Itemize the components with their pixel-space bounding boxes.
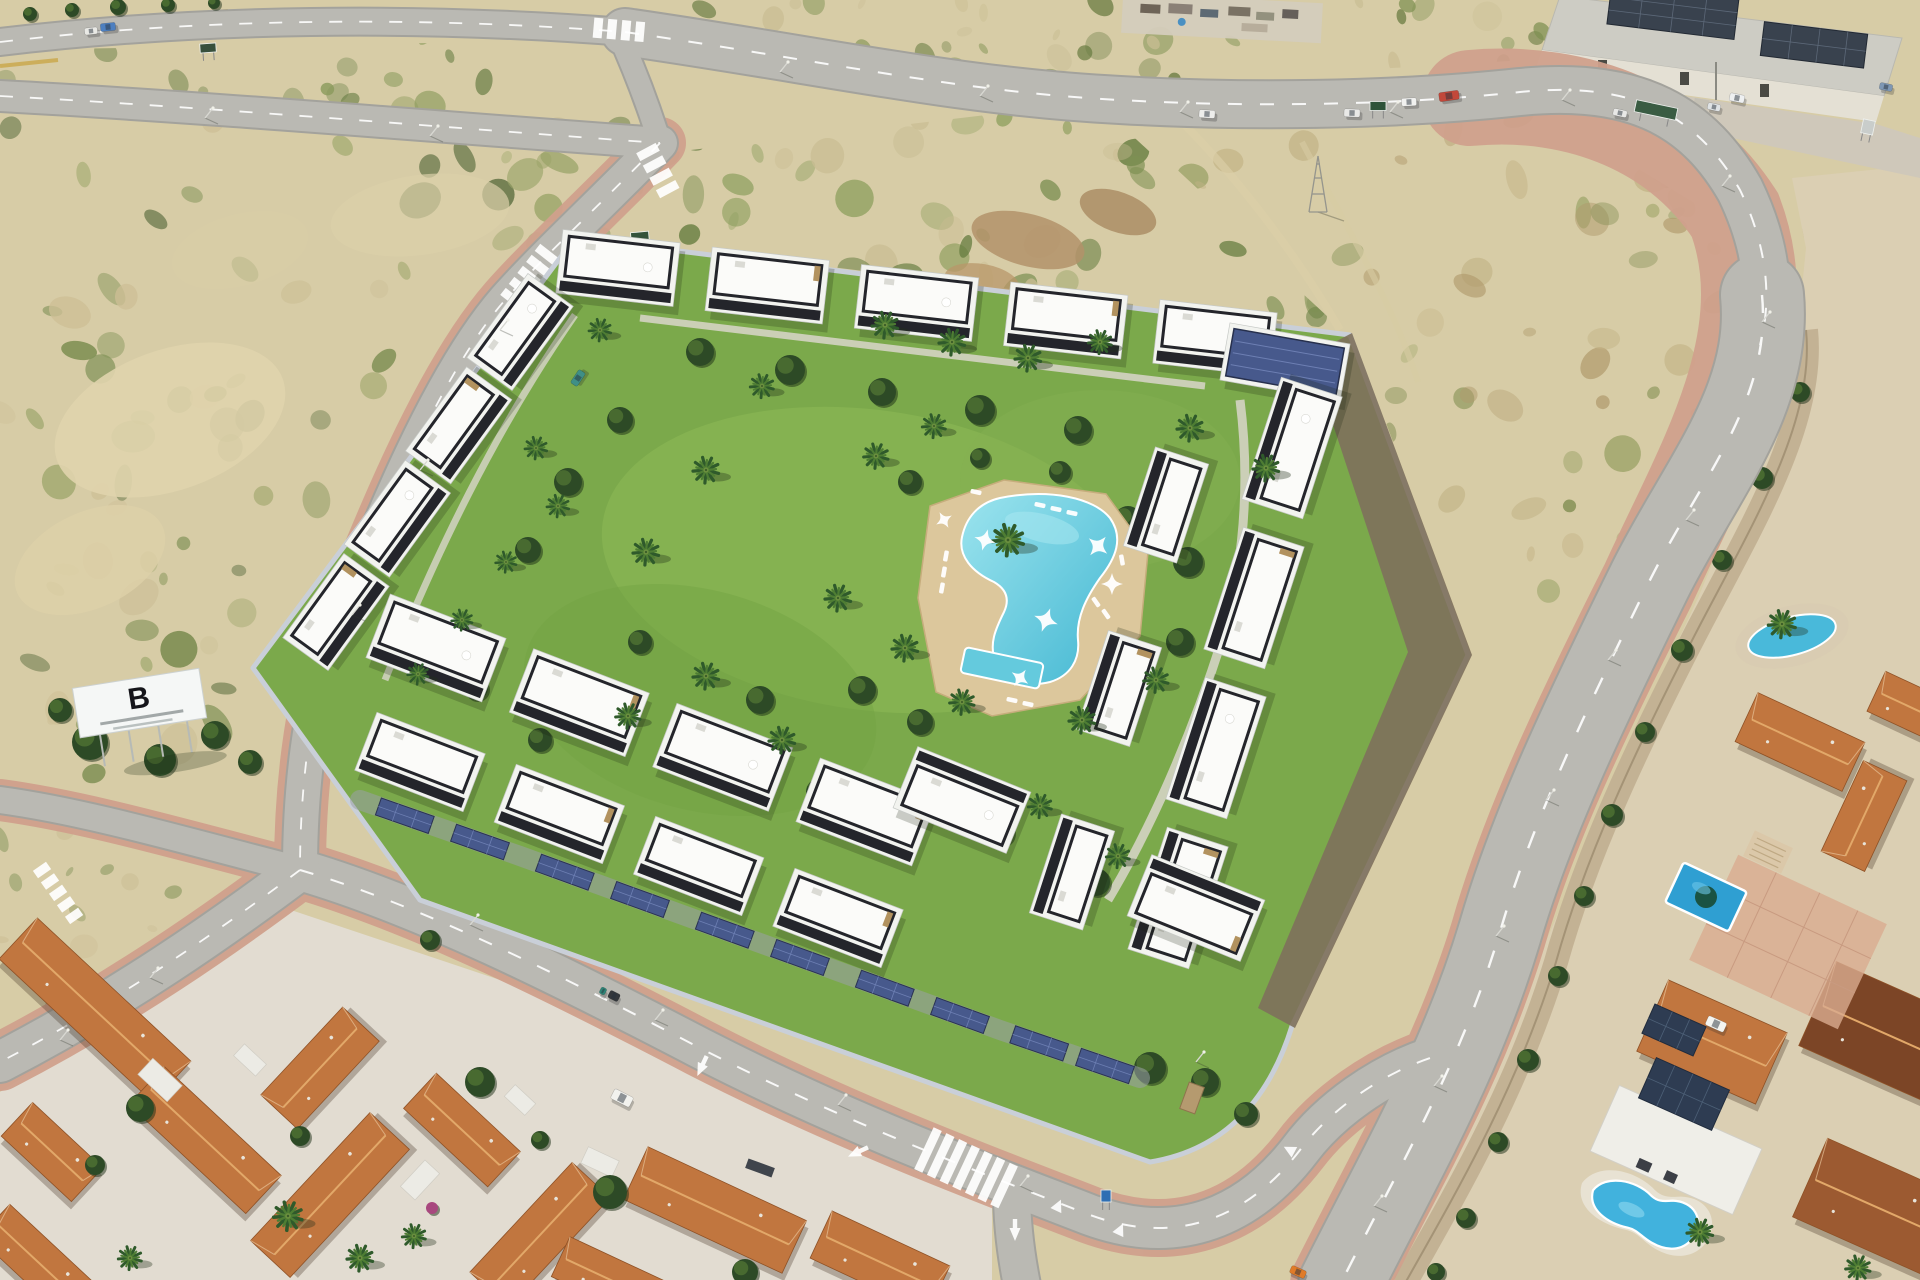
- aerial-render: B: [0, 0, 1920, 1280]
- light-lamp: [1728, 174, 1731, 177]
- warehouse-door: [1760, 84, 1769, 97]
- building-block: [704, 247, 835, 333]
- light-lamp: [1692, 508, 1695, 511]
- roof-furniture: [884, 278, 895, 285]
- light-lamp: [1768, 310, 1771, 313]
- scrub-patch: [979, 4, 988, 22]
- vehicle-glass: [1445, 92, 1453, 99]
- light-lamp: [1026, 1174, 1029, 1177]
- light-lamp: [986, 84, 989, 87]
- light-lamp: [1396, 100, 1399, 103]
- light-lamp: [211, 106, 214, 109]
- vehicle-glass: [1617, 110, 1623, 115]
- sign-panel: [1370, 102, 1386, 111]
- sign-panel: [200, 43, 217, 53]
- light-lamp: [661, 1008, 664, 1011]
- light-lamp: [844, 1093, 847, 1096]
- roof-furniture: [585, 243, 596, 250]
- scrub-patch: [1385, 387, 1407, 404]
- light-lamp: [1380, 1194, 1383, 1197]
- roof-furniture: [735, 261, 746, 268]
- vehicle-glass: [105, 24, 111, 30]
- light-lamp: [436, 124, 439, 127]
- light-lamp: [1568, 88, 1571, 91]
- zebra-stripe: [634, 21, 645, 42]
- light-lamp: [1186, 100, 1189, 103]
- zebra-stripe: [593, 18, 604, 39]
- vehicle-glass: [1349, 110, 1355, 116]
- light-lamp: [426, 458, 429, 461]
- light-lamp: [1440, 1074, 1443, 1077]
- light-lamp: [156, 966, 159, 969]
- sign-panel: [1861, 119, 1876, 135]
- zebra-stripe: [607, 19, 618, 40]
- warehouse-door: [1680, 72, 1689, 85]
- light-lamp: [786, 60, 789, 63]
- light-lamp: [1614, 648, 1617, 651]
- sign-panel: [1101, 1190, 1111, 1202]
- vehicle-glass: [1204, 111, 1210, 117]
- vehicle: [1344, 109, 1363, 121]
- light-lamp: [476, 913, 479, 916]
- roof-furniture: [1182, 313, 1193, 320]
- light-lamp: [1202, 1050, 1205, 1053]
- screenshot-root: B: [0, 0, 1920, 1280]
- roof-furniture: [1033, 296, 1044, 303]
- light-lamp: [66, 1028, 69, 1031]
- light-lamp: [1502, 924, 1505, 927]
- light-lamp: [506, 318, 509, 321]
- vehicle-glass: [1406, 99, 1411, 105]
- zebra-stripe: [621, 20, 632, 41]
- scrub-patch: [1646, 204, 1660, 218]
- light-lamp: [358, 603, 361, 606]
- light-lamp: [1552, 788, 1555, 791]
- vehicle-glass: [89, 28, 94, 33]
